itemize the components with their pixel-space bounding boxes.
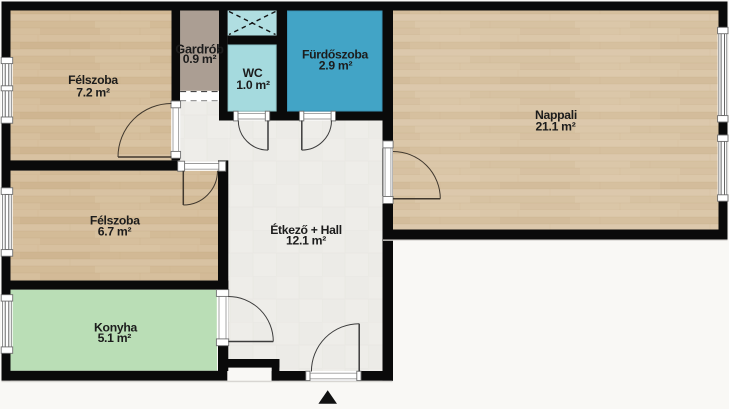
svg-text:1.0 m²: 1.0 m² xyxy=(236,78,270,92)
svg-text:12.1 m²: 12.1 m² xyxy=(286,234,326,248)
svg-text:7.2 m²: 7.2 m² xyxy=(76,85,110,99)
svg-text:6.7 m²: 6.7 m² xyxy=(98,225,132,239)
svg-text:5.1 m²: 5.1 m² xyxy=(98,331,132,345)
svg-text:21.1 m²: 21.1 m² xyxy=(536,119,576,133)
svg-text:2.9 m²: 2.9 m² xyxy=(319,59,353,73)
svg-text:0.9 m²: 0.9 m² xyxy=(183,52,217,66)
